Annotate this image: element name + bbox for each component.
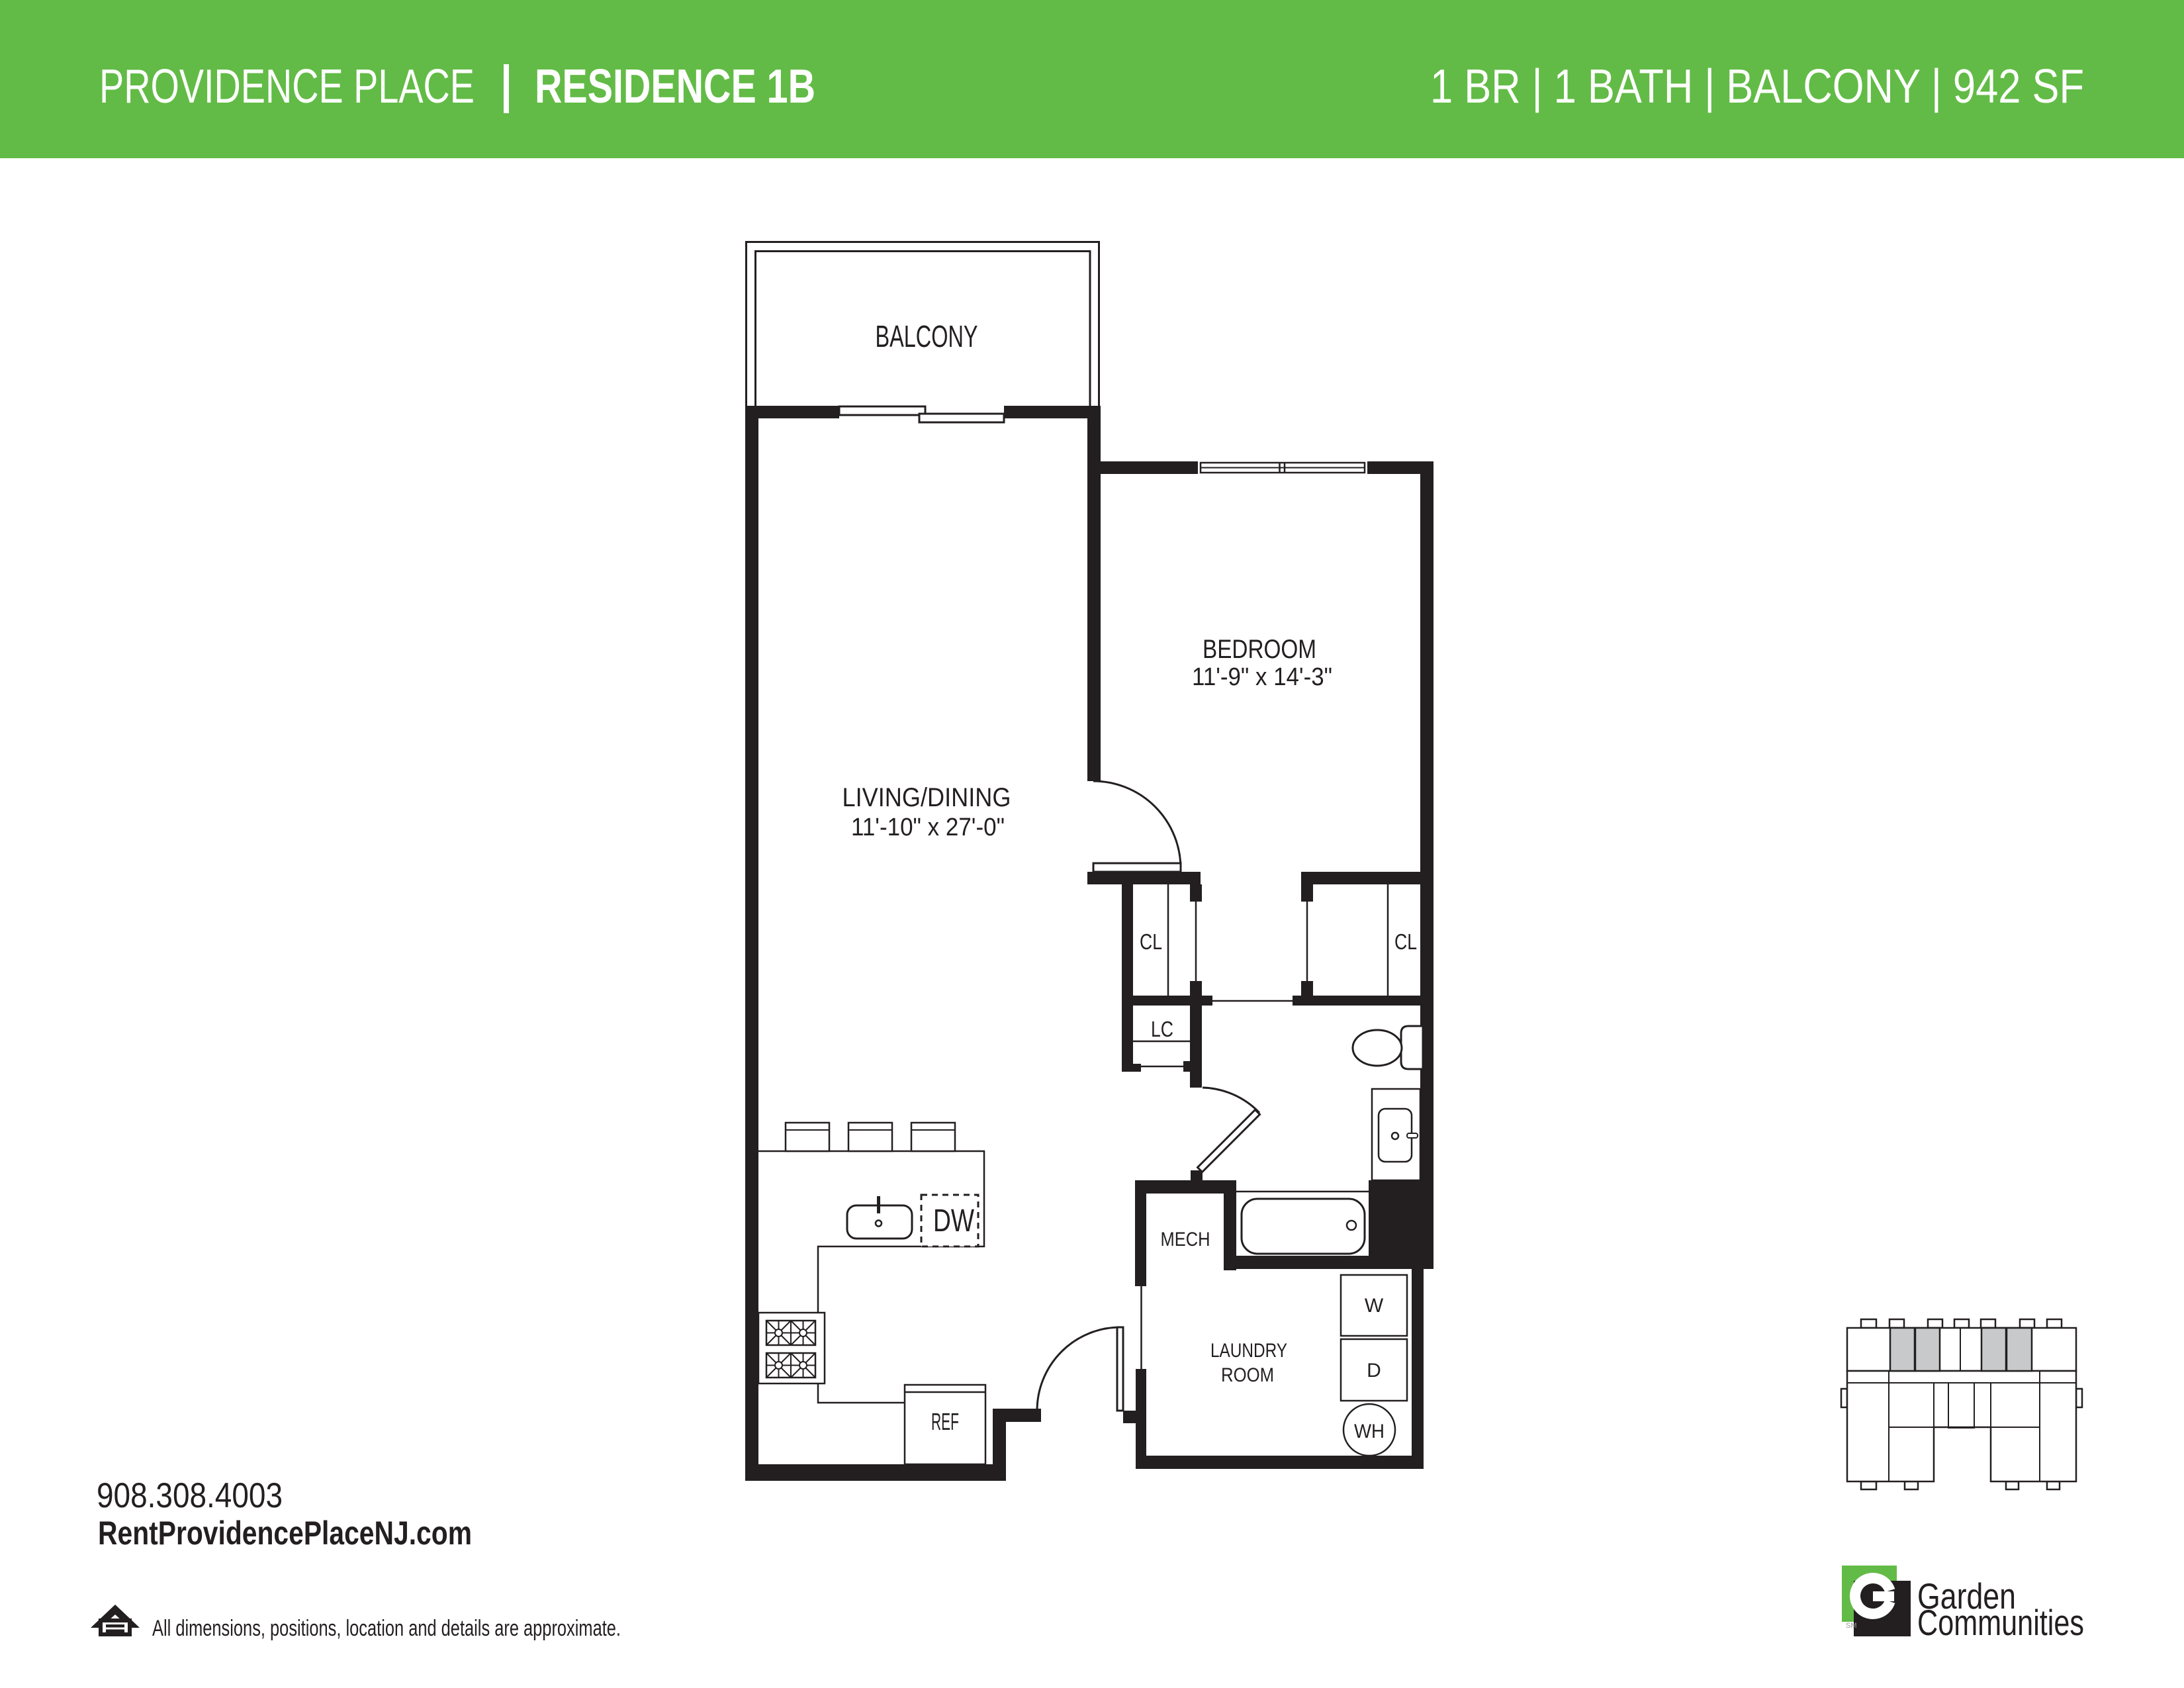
svg-text:LAUNDRY: LAUNDRY — [1210, 1340, 1287, 1362]
svg-text:DW: DW — [933, 1203, 975, 1239]
svg-text:Communities: Communities — [1917, 1602, 2084, 1643]
svg-text:All dimensions, positions, loc: All dimensions, positions, location and … — [152, 1616, 621, 1641]
svg-text:WH: WH — [1354, 1421, 1385, 1442]
svg-text:ROOM: ROOM — [1221, 1364, 1274, 1386]
svg-text:RESIDENCE 1B: RESIDENCE 1B — [535, 60, 815, 113]
svg-text:REF: REF — [931, 1408, 959, 1435]
svg-text:908.308.4003: 908.308.4003 — [97, 1476, 283, 1515]
svg-text:D: D — [1367, 1360, 1381, 1382]
svg-text:RentProvidencePlaceNJ.com: RentProvidencePlaceNJ.com — [98, 1515, 472, 1552]
svg-text:BEDROOM: BEDROOM — [1203, 635, 1316, 664]
svg-text:11'-9" x 14'-3": 11'-9" x 14'-3" — [1192, 663, 1332, 691]
svg-text:W: W — [1365, 1295, 1384, 1317]
svg-text:CL: CL — [1394, 929, 1417, 954]
svg-text:MECH: MECH — [1161, 1229, 1210, 1250]
svg-text:11'-10" x 27'-0": 11'-10" x 27'-0" — [851, 814, 1005, 841]
svg-text:LIVING/DINING: LIVING/DINING — [842, 783, 1011, 812]
svg-text:CL: CL — [1140, 929, 1162, 954]
svg-text:BALCONY: BALCONY — [876, 319, 978, 353]
svg-text:SM: SM — [1846, 1622, 1857, 1630]
svg-text:PROVIDENCE PLACE: PROVIDENCE PLACE — [99, 60, 475, 113]
svg-text:LC: LC — [1151, 1017, 1173, 1041]
svg-text:1 BR | 1 BATH | BALCONY | 942: 1 BR | 1 BATH | BALCONY | 942 SF — [1430, 60, 2084, 113]
